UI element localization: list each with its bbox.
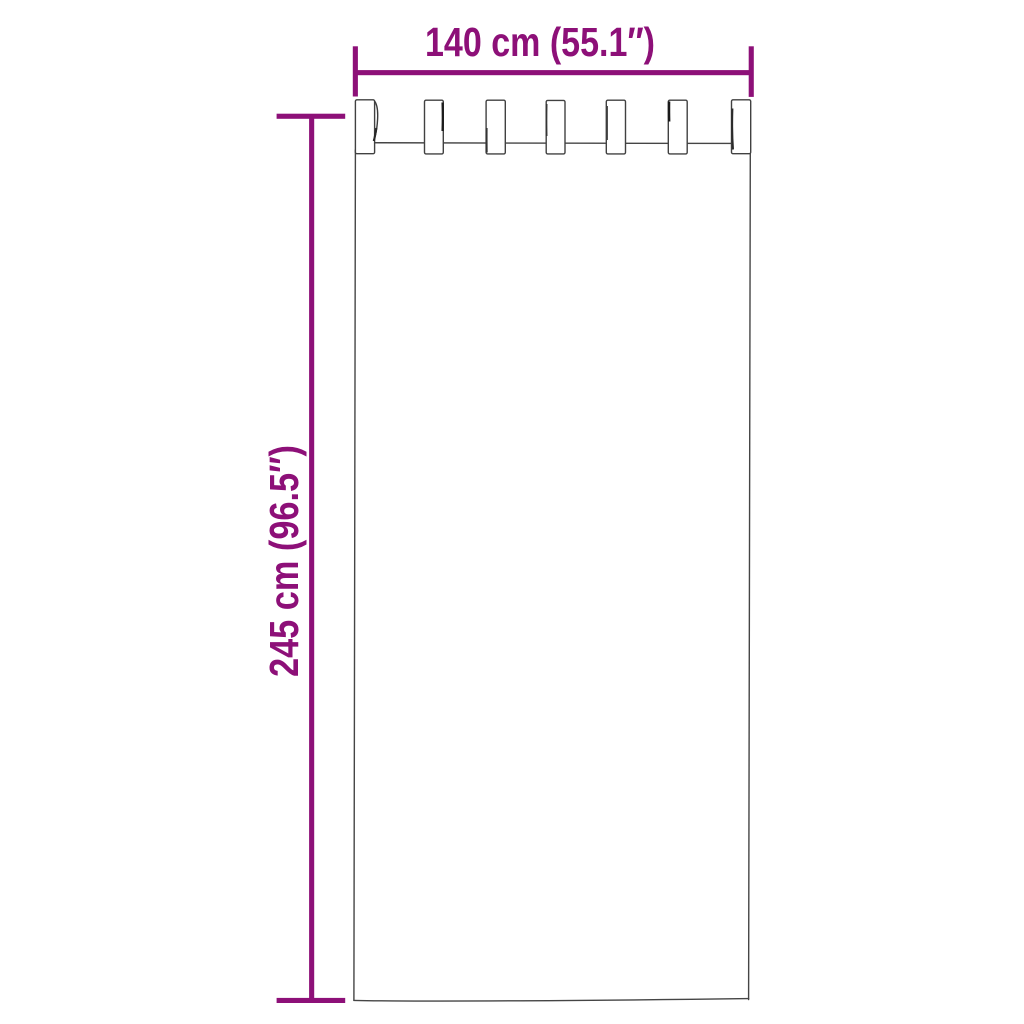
svg-text:140 cm (55.1″): 140 cm (55.1″) [425, 19, 655, 65]
svg-text:245 cm (96.5″): 245 cm (96.5″) [261, 445, 307, 677]
